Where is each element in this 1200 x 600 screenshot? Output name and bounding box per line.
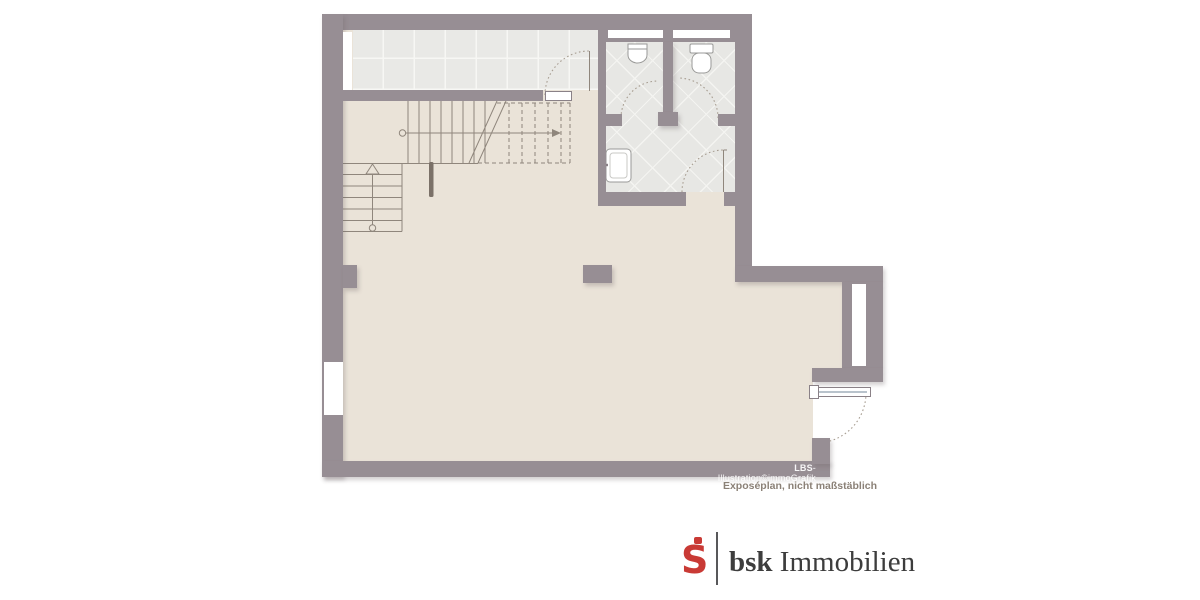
wall-bathroom-bottom [598,192,686,206]
plan-disclaimer: Exposéplan, nicht maßstäblich [677,480,877,492]
entry-floor [735,368,813,461]
entry-door-hinge [809,385,819,399]
bay-floor [735,282,842,368]
brand-name-rest: Immobilien [773,546,916,578]
wall-corridor [336,90,543,101]
logo-divider [716,532,718,585]
wall-bathroom-bottom-corner [724,192,735,206]
wall-stub [658,112,678,126]
entry-door-leaf [815,387,871,397]
window [608,30,663,38]
window [673,30,730,38]
plan-credit-brand: LBS [794,463,813,473]
brand-name: bsk Immobilien [729,546,915,579]
wall-wc-divider [663,42,673,118]
wall-right [735,14,752,268]
window [324,362,343,415]
floor-plan: LBS-Illustration©immoGrafik Exposéplan, … [0,0,1200,600]
wall-bathroom-left [598,14,606,202]
sparkasse-s-icon: S [681,537,711,581]
wall-entry-head [812,368,883,382]
corridor-door-leaf [545,91,572,101]
window [852,284,866,366]
brand-name-bold: bsk [729,546,773,578]
wall-stub-left [343,265,357,288]
window [343,32,352,90]
corridor-floor-tiles [353,28,598,90]
pillar [583,265,612,283]
wall-stub [606,114,622,126]
page: LBS-Illustration©immoGrafik Exposéplan, … [0,0,1200,600]
wall-entry-corner [812,438,830,464]
wall-stub [718,114,735,126]
wall-bay-top [735,266,883,282]
